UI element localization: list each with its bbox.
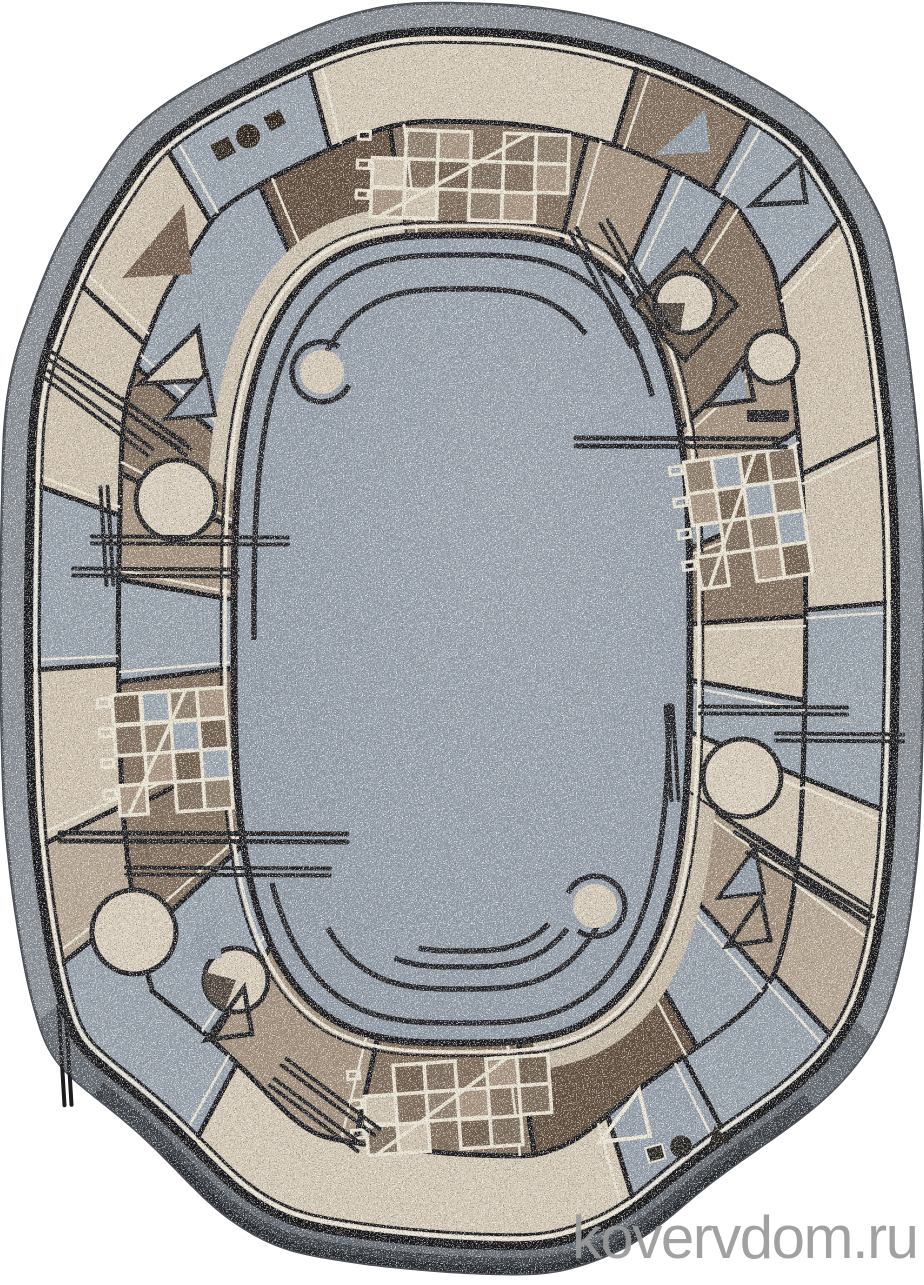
svg-text:kovervdom.ru: kovervdom.ru [572,1204,917,1271]
